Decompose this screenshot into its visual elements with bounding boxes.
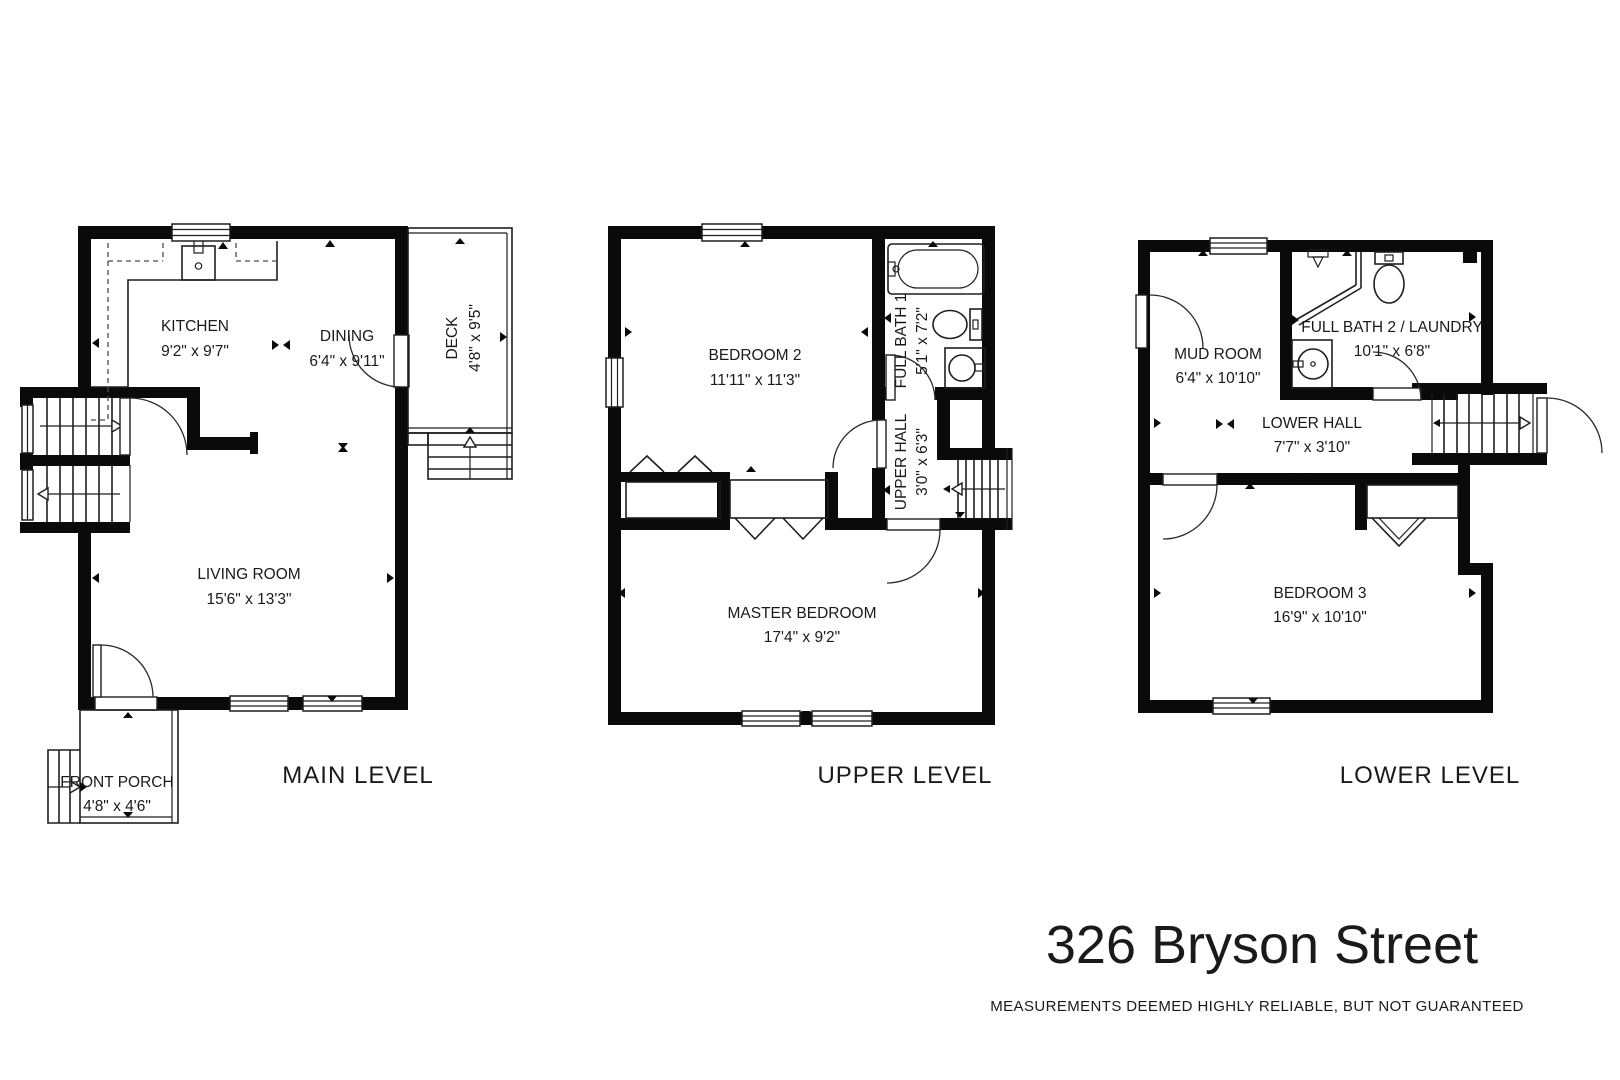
- room-deck-dims: 4'8" x 9'5": [467, 304, 484, 372]
- floorplan-sheet: KITCHEN 9'2" x 9'7" DINING 6'4" x 9'11" …: [0, 0, 1620, 1080]
- floorplan-canvas: KITCHEN 9'2" x 9'7" DINING 6'4" x 9'11" …: [0, 0, 1620, 1080]
- bedroom2-door: [833, 420, 886, 468]
- mudroom-door: [1136, 295, 1203, 348]
- toilet-fixture-lower: [1374, 252, 1404, 303]
- kitchen-window: [172, 224, 230, 241]
- room-porch-label: FRONT PORCH: [60, 774, 173, 791]
- room-mudroom-dims: 6'4" x 10'10": [1175, 370, 1260, 387]
- front-door: [93, 645, 157, 710]
- room-master-dims: 17'4" x 9'2": [764, 629, 840, 646]
- room-bath1-label: FULL BATH 1: [893, 294, 910, 389]
- room-upperhall-label: UPPER HALL: [893, 413, 910, 510]
- upper-level-label: UPPER LEVEL: [817, 762, 992, 789]
- bedroom3-door: [1163, 474, 1217, 539]
- room-lowerhall-label: LOWER HALL: [1262, 415, 1362, 432]
- room-bedroom3-label: BEDROOM 3: [1273, 585, 1366, 602]
- page-title: 326 Bryson Street: [1046, 915, 1478, 975]
- room-bedroom2-dims: 11'11" x 11'3": [710, 372, 800, 389]
- room-bath2-label: FULL BATH 2 / LAUNDRY: [1301, 319, 1482, 336]
- lower-level-label: LOWER LEVEL: [1340, 762, 1520, 789]
- room-master-label: MASTER BEDROOM: [728, 605, 877, 622]
- room-deck-label: DECK: [444, 316, 461, 360]
- room-dining-dims: 6'4" x 9'11": [309, 353, 384, 370]
- stairs-down-arrow: [38, 488, 48, 500]
- room-bedroom2-label: BEDROOM 2: [708, 347, 801, 364]
- main-level-label: MAIN LEVEL: [282, 762, 433, 789]
- stair-door: [120, 398, 187, 455]
- upper-level-plan: BEDROOM 2 11'11" x 11'3" FULL BATH 1 5'1…: [606, 224, 1012, 789]
- deck-stairs-arrow: [464, 437, 476, 447]
- bedroom2-closets: [626, 456, 720, 518]
- room-porch-dims: 4'8" x 4'6": [83, 798, 151, 815]
- room-living-label: LIVING ROOM: [197, 566, 300, 583]
- room-bath2-dims: 10'1" x 6'8": [1354, 343, 1430, 360]
- toilet-fixture-upper: [933, 309, 982, 340]
- bedroom3-closet: [1367, 485, 1458, 546]
- bedroom3-window: [1213, 698, 1270, 714]
- main-level-plan: KITCHEN 9'2" x 9'7" DINING 6'4" x 9'11" …: [20, 224, 512, 823]
- lower-stairs: [1432, 394, 1533, 453]
- room-living-dims: 15'6" x 13'3": [206, 591, 291, 608]
- sink-fixture-upper: [945, 348, 985, 388]
- title-block: 326 Bryson Street MEASUREMENTS DEEMED HI…: [990, 915, 1524, 1015]
- bedroom2-left-window: [606, 358, 623, 407]
- room-bath1-dims: 5'1" x 7'2": [914, 307, 931, 375]
- sink-fixture-lower: [1292, 340, 1332, 388]
- stairs-up: [40, 398, 122, 455]
- master-door: [887, 519, 940, 583]
- deck-stairs: [408, 427, 512, 479]
- room-kitchen-dims: 9'2" x 9'7": [161, 343, 229, 360]
- bedroom2-top-window: [702, 224, 762, 241]
- upper-level-walls: [608, 226, 1012, 725]
- shower-fixture: [1294, 250, 1361, 325]
- master-closet: [730, 480, 828, 539]
- upper-stairs-arrow: [952, 483, 962, 495]
- room-dining-label: DINING: [320, 328, 374, 345]
- main-level-walls: [20, 226, 408, 710]
- bathtub-fixture: [888, 244, 984, 294]
- mudroom-window: [1210, 238, 1267, 254]
- upper-stairs: [943, 448, 1012, 530]
- room-mudroom-label: MUD ROOM: [1174, 346, 1262, 363]
- lower-level-plan: MUD ROOM 6'4" x 10'10" FULL BATH 2 / LAU…: [1136, 238, 1602, 789]
- room-bedroom3-dims: 16'9" x 10'10": [1273, 609, 1367, 626]
- lower-stairs-arrow: [1520, 417, 1530, 429]
- disclaimer-text: MEASUREMENTS DEEMED HIGHLY RELIABLE, BUT…: [990, 998, 1524, 1015]
- room-upperhall-dims: 3'0" x 6'3": [914, 428, 931, 496]
- room-lowerhall-dims: 7'7" x 3'10": [1274, 439, 1350, 456]
- basement-exit-door: [1537, 398, 1602, 453]
- room-kitchen-label: KITCHEN: [161, 318, 229, 335]
- stairs-down: [38, 465, 130, 522]
